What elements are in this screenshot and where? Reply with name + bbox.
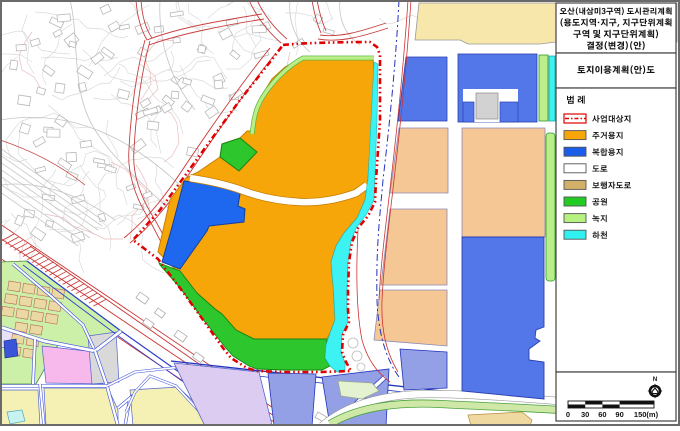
svg-text:N: N	[653, 376, 658, 383]
svg-text:30: 30	[581, 410, 589, 419]
svg-text:150(m): 150(m)	[634, 410, 659, 419]
svg-text:60: 60	[598, 410, 606, 419]
svg-text:0: 0	[566, 410, 570, 419]
svg-text:90: 90	[615, 410, 623, 419]
